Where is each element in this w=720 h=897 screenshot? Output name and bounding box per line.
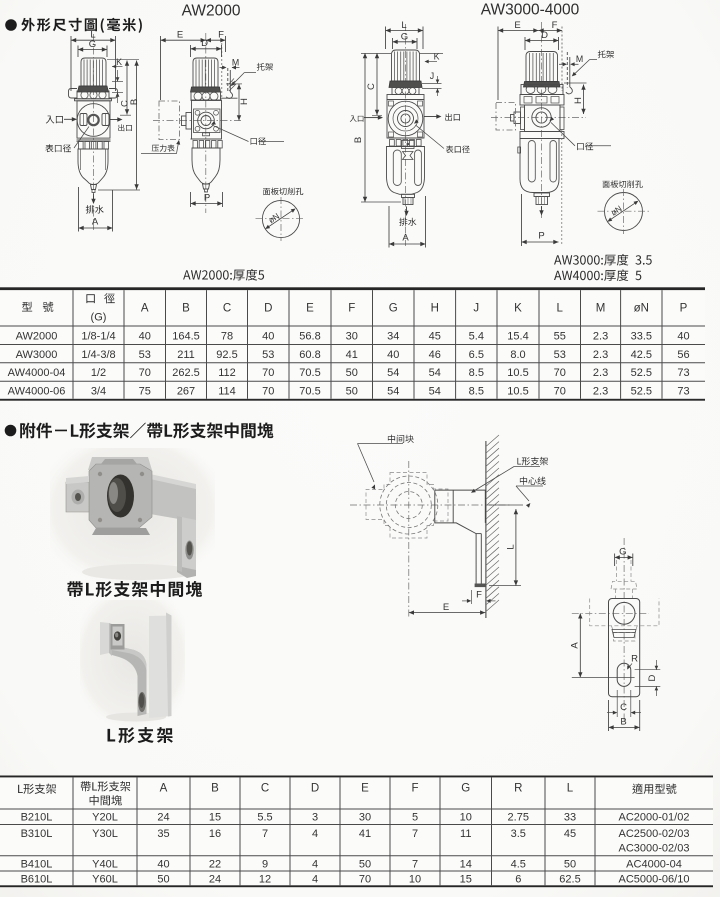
svg-text:F: F <box>552 20 558 31</box>
svg-text:73: 73 <box>677 367 689 379</box>
svg-text:L: L <box>505 544 516 549</box>
svg-text:4.5: 4.5 <box>511 858 526 870</box>
svg-text:73: 73 <box>677 386 689 398</box>
svg-text:M: M <box>576 54 583 64</box>
svg-text:45: 45 <box>429 331 441 343</box>
svg-text:P: P <box>204 193 210 204</box>
svg-text:45: 45 <box>564 828 576 840</box>
svg-text:262.5: 262.5 <box>172 367 200 379</box>
svg-text:30: 30 <box>359 812 371 824</box>
svg-text:92.5: 92.5 <box>216 349 237 361</box>
svg-text:J: J <box>430 71 434 81</box>
svg-text:E: E <box>514 20 520 31</box>
svg-text:F: F <box>348 303 355 315</box>
svg-text:14: 14 <box>460 858 472 870</box>
svg-text:114: 114 <box>218 386 236 398</box>
svg-text:J: J <box>473 303 479 315</box>
svg-text:E: E <box>306 303 314 315</box>
svg-text:4: 4 <box>312 873 318 885</box>
svg-text:56.8: 56.8 <box>299 331 320 343</box>
svg-text:B310L: B310L <box>21 828 53 840</box>
svg-text:AW3000: AW3000 <box>16 349 58 361</box>
svg-text:F: F <box>218 30 224 41</box>
svg-text:53: 53 <box>262 349 274 361</box>
svg-text:10: 10 <box>460 812 472 824</box>
svg-text:AC4000-04: AC4000-04 <box>626 858 682 870</box>
svg-text:2.75: 2.75 <box>508 812 529 824</box>
svg-text:G: G <box>461 783 470 795</box>
svg-text:(G): (G) <box>91 312 107 324</box>
svg-text:D: D <box>311 783 319 795</box>
svg-text:40: 40 <box>157 858 169 870</box>
svg-text:50: 50 <box>346 367 358 379</box>
svg-text:C: C <box>366 83 377 90</box>
svg-text:Y60L: Y60L <box>92 873 118 885</box>
svg-text:B210L: B210L <box>21 812 53 824</box>
svg-text:60.8: 60.8 <box>299 349 320 361</box>
svg-text:40: 40 <box>677 331 689 343</box>
svg-text:AW3000-4000: AW3000-4000 <box>481 2 580 19</box>
svg-text:D: D <box>647 674 658 681</box>
svg-text:7: 7 <box>262 828 268 840</box>
svg-text:75: 75 <box>139 386 151 398</box>
svg-text:K: K <box>116 57 122 67</box>
svg-text:70: 70 <box>262 386 274 398</box>
svg-text:10.5: 10.5 <box>507 367 528 379</box>
svg-text:54: 54 <box>429 386 441 398</box>
svg-text:R: R <box>631 654 638 665</box>
svg-text:41: 41 <box>359 828 371 840</box>
svg-text:40: 40 <box>387 349 399 361</box>
svg-text:Y40L: Y40L <box>92 858 118 870</box>
svg-text:AW4000-06: AW4000-06 <box>8 386 66 398</box>
svg-text:F: F <box>411 783 418 795</box>
svg-text:22: 22 <box>209 858 221 870</box>
svg-text:H: H <box>239 98 250 105</box>
svg-text:52.5: 52.5 <box>631 386 652 398</box>
svg-text:50: 50 <box>346 386 358 398</box>
svg-text:7: 7 <box>412 828 418 840</box>
svg-text:1/4-3/8: 1/4-3/8 <box>81 349 115 361</box>
svg-text:15.4: 15.4 <box>507 331 528 343</box>
svg-text:40: 40 <box>139 331 151 343</box>
svg-text:70.5: 70.5 <box>299 367 320 379</box>
svg-text:15: 15 <box>209 812 221 824</box>
svg-text:56: 56 <box>677 349 689 361</box>
svg-text:3: 3 <box>312 812 318 824</box>
svg-text:53: 53 <box>554 349 566 361</box>
svg-text:70: 70 <box>262 367 274 379</box>
svg-text:D: D <box>541 30 548 41</box>
svg-text:9: 9 <box>262 858 268 870</box>
svg-text:164.5: 164.5 <box>172 331 200 343</box>
svg-text:6.5: 6.5 <box>469 349 484 361</box>
svg-text:Y20L: Y20L <box>92 812 118 824</box>
svg-text:54: 54 <box>387 386 399 398</box>
svg-text:4: 4 <box>312 858 318 870</box>
svg-text:AW2000: AW2000 <box>182 3 241 20</box>
svg-text:50: 50 <box>564 858 576 870</box>
svg-text:24: 24 <box>157 812 169 824</box>
svg-text:AC3000-02/03: AC3000-02/03 <box>619 842 690 854</box>
svg-text:R: R <box>514 783 522 795</box>
svg-text:B610L: B610L <box>21 873 53 885</box>
svg-text:34: 34 <box>387 331 399 343</box>
svg-text:AW4000-04: AW4000-04 <box>8 367 66 379</box>
svg-text:B: B <box>620 717 626 728</box>
svg-text:B: B <box>353 137 364 143</box>
svg-text:41: 41 <box>346 349 358 361</box>
svg-text:2.3: 2.3 <box>593 349 608 361</box>
svg-text:78: 78 <box>221 331 233 343</box>
svg-text:10.5: 10.5 <box>507 386 528 398</box>
svg-text:M: M <box>596 303 606 315</box>
svg-text:2.3: 2.3 <box>593 386 608 398</box>
svg-text:G: G <box>619 547 626 558</box>
svg-text:4: 4 <box>312 828 318 840</box>
svg-text:7: 7 <box>412 858 418 870</box>
svg-text:E: E <box>177 30 183 41</box>
svg-text:B: B <box>129 99 140 105</box>
svg-text:K: K <box>434 52 440 62</box>
svg-text:Y30L: Y30L <box>92 828 118 840</box>
svg-text:L: L <box>567 783 574 795</box>
svg-text:B410L: B410L <box>21 858 53 870</box>
svg-text:5.4: 5.4 <box>469 331 484 343</box>
svg-text:F: F <box>476 590 482 601</box>
svg-text:70.5: 70.5 <box>299 386 320 398</box>
svg-text:K: K <box>514 303 522 315</box>
svg-text:A: A <box>92 217 99 228</box>
svg-text:A: A <box>570 642 581 649</box>
svg-text:G: G <box>89 39 96 50</box>
svg-text:33: 33 <box>564 812 576 824</box>
svg-text:D: D <box>201 38 208 49</box>
svg-text:2.3: 2.3 <box>593 331 608 343</box>
svg-text:54: 54 <box>387 367 399 379</box>
svg-text:50: 50 <box>359 858 371 870</box>
svg-text:46: 46 <box>429 349 441 361</box>
svg-text:12: 12 <box>259 873 271 885</box>
svg-text:54: 54 <box>429 367 441 379</box>
svg-text:8.5: 8.5 <box>469 386 484 398</box>
svg-text:B: B <box>211 783 219 795</box>
svg-text:16: 16 <box>209 828 221 840</box>
svg-text:3.5: 3.5 <box>511 828 526 840</box>
svg-text:G: G <box>401 32 408 43</box>
svg-text:H: H <box>431 303 439 315</box>
svg-text:70: 70 <box>554 367 566 379</box>
svg-text:C: C <box>223 303 231 315</box>
svg-text:70: 70 <box>554 386 566 398</box>
svg-text:8.0: 8.0 <box>510 349 525 361</box>
svg-text:2.3: 2.3 <box>593 367 608 379</box>
svg-text:70: 70 <box>139 367 151 379</box>
svg-text:62.5: 62.5 <box>559 873 580 885</box>
svg-text:211: 211 <box>177 349 195 361</box>
svg-text:A: A <box>160 783 168 795</box>
svg-text:E: E <box>361 783 369 795</box>
svg-text:5.5: 5.5 <box>257 812 272 824</box>
svg-text:AC5000-06/10: AC5000-06/10 <box>619 873 690 885</box>
svg-text:70: 70 <box>359 873 371 885</box>
svg-text:112: 112 <box>218 367 236 379</box>
svg-text:15: 15 <box>460 873 472 885</box>
svg-text:11: 11 <box>460 828 471 840</box>
svg-text:40: 40 <box>262 331 274 343</box>
svg-text:AC2500-02/03: AC2500-02/03 <box>619 828 690 840</box>
svg-text:267: 267 <box>177 386 195 398</box>
svg-text:33.5: 33.5 <box>631 331 652 343</box>
svg-text:AW2000: AW2000 <box>16 331 58 343</box>
svg-text:3/4: 3/4 <box>91 386 106 398</box>
svg-text:C: C <box>620 702 627 713</box>
svg-text:52.5: 52.5 <box>631 367 652 379</box>
svg-text:1/8-1/4: 1/8-1/4 <box>81 331 115 343</box>
svg-text:50: 50 <box>157 873 169 885</box>
svg-text:1/2: 1/2 <box>91 367 106 379</box>
svg-text:A: A <box>141 303 149 315</box>
svg-text:6: 6 <box>515 873 521 885</box>
svg-text:E: E <box>443 602 449 613</box>
svg-text:30: 30 <box>346 331 358 343</box>
svg-text:L: L <box>401 20 406 31</box>
svg-text:øN: øN <box>634 303 649 315</box>
svg-text:42.5: 42.5 <box>631 349 652 361</box>
svg-text:8.5: 8.5 <box>469 367 484 379</box>
svg-text:P: P <box>680 303 688 315</box>
svg-text:H: H <box>573 97 584 104</box>
svg-text:L: L <box>557 303 564 315</box>
svg-text:D: D <box>264 303 272 315</box>
svg-text:35: 35 <box>157 828 169 840</box>
svg-text:B: B <box>182 303 190 315</box>
svg-text:5: 5 <box>412 812 418 824</box>
svg-text:53: 53 <box>139 349 151 361</box>
svg-text:G: G <box>389 303 398 315</box>
svg-text:C: C <box>261 783 269 795</box>
svg-text:10: 10 <box>409 873 421 885</box>
svg-text:AC2000-01/02: AC2000-01/02 <box>619 812 690 824</box>
svg-text:P: P <box>538 231 544 242</box>
svg-text:A: A <box>402 233 409 244</box>
svg-text:55: 55 <box>554 331 566 343</box>
svg-text:24: 24 <box>209 873 221 885</box>
